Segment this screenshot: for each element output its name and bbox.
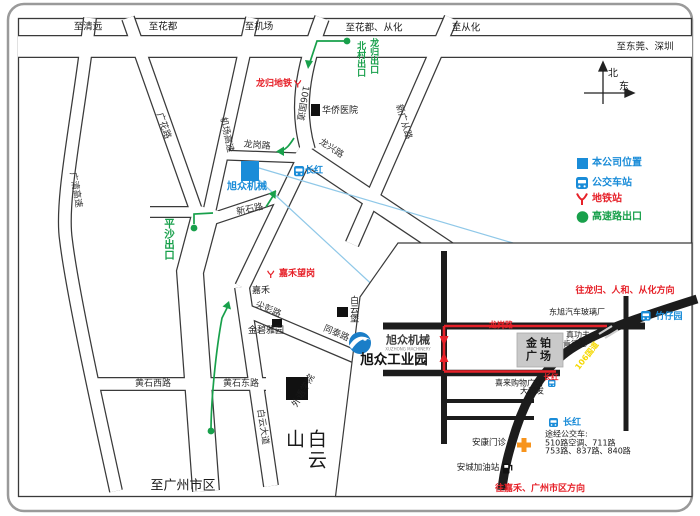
legend-exit-label: 高速路出口 <box>592 211 642 223</box>
inset-bus-info-line2: 753路、837路、840路 <box>545 446 631 455</box>
road-huangshi-east: 黄石东路 <box>223 379 259 389</box>
inset-place-dongxu-glass: 东旭汽车玻璃厂 <box>549 307 605 316</box>
compass-north-label: 北 <box>608 68 618 80</box>
exit-longgui: 龙归出口 <box>368 38 378 74</box>
compass-east-label: 东 <box>619 81 629 93</box>
metro-jiahewanggang-label: 嘉禾望岗 <box>279 269 315 279</box>
place-baiyun-mountain: 白云山 <box>282 429 326 487</box>
road-huangshi-west: 黄石西路 <box>135 379 171 389</box>
inset-place-darunfa: 大润发 <box>520 386 544 395</box>
inset-place-kfc: 肯德基 <box>563 339 587 348</box>
road-to-huadu: 至花都 <box>149 23 178 34</box>
inset-direction-southwest: 往嘉禾、广州市区方向 <box>495 484 585 494</box>
place-baiyunbao: 白云堡 <box>348 296 358 323</box>
inset-place-ankang-clinic: 安康门诊 <box>472 439 506 449</box>
legend-company-label: 本公司位置 <box>592 157 642 169</box>
company-logo-name: 旭众机械 <box>386 335 430 348</box>
company-park-name: 旭众工业园 <box>360 353 428 369</box>
company-marker <box>241 161 259 181</box>
inset-direction-northeast: 往龙归、人和、从化方向 <box>575 286 674 296</box>
legend-metro-label: 地铁站 <box>592 193 622 205</box>
road-to-guangzhou-city: 至广州市区 <box>150 480 215 495</box>
busstop-changhong-main: 长红 <box>305 166 323 176</box>
inset-jinbo-line2: 广场 <box>526 351 554 364</box>
legend-bus-label: 公交车站 <box>592 177 632 189</box>
changhong-bus-icon <box>294 166 304 176</box>
inset-busstop-zhuzaiyuan: 竹仔园 <box>655 312 682 322</box>
inset-jinbo-line1: 金铂 <box>526 338 554 351</box>
legend-company-icon <box>577 158 588 169</box>
inset-busstop-changhong: 长红 <box>563 418 581 428</box>
road-longgang-main: 龙岗路 <box>243 140 271 153</box>
road-to-conghua: 至从化 <box>452 24 481 35</box>
inset-road-longgang: 龙岗路 <box>489 320 513 329</box>
inset-bus-info-title: 途经公交车: <box>545 429 588 438</box>
inset-place-zhengongfu: 真功夫 <box>566 330 590 339</box>
place-jiahe: 嘉禾 <box>252 286 270 296</box>
zhuzaiyuan-bus-icon <box>641 311 651 321</box>
inset-changhong-junction: 长红 <box>544 374 559 383</box>
inset-place-ancheng-gas: 安城加油站 <box>457 464 500 474</box>
company-logo-icon <box>349 332 371 354</box>
road-to-qingyuan: 至清远 <box>74 23 103 34</box>
place-huaqiao-hospital: 华侨医院 <box>322 106 358 116</box>
road-to-huadu-conghua: 至花都、从化 <box>345 24 402 35</box>
legend-exit-icon <box>577 211 589 223</box>
inset-changhong-bus-icon <box>549 418 558 427</box>
exit-pingsha: 平沙出口 <box>163 218 175 260</box>
road-to-airport: 至机场 <box>245 23 274 34</box>
legend-bus-icon <box>576 177 588 189</box>
road-to-dongguan-shenzhen: 至东莞、深圳 <box>616 43 673 54</box>
exit-beicun: 北村出口 <box>355 41 365 77</box>
metro-longgui-label: 龙归地铁 <box>256 79 292 89</box>
company-name-main: 旭众机械 <box>227 181 267 193</box>
location-map: 至清远 至花都 至机场 至花都、从化 至从化 至东莞、深圳 至广州市区 北 东 … <box>0 0 700 516</box>
place-jinbiyayuan: 金碧雅园 <box>248 326 284 336</box>
